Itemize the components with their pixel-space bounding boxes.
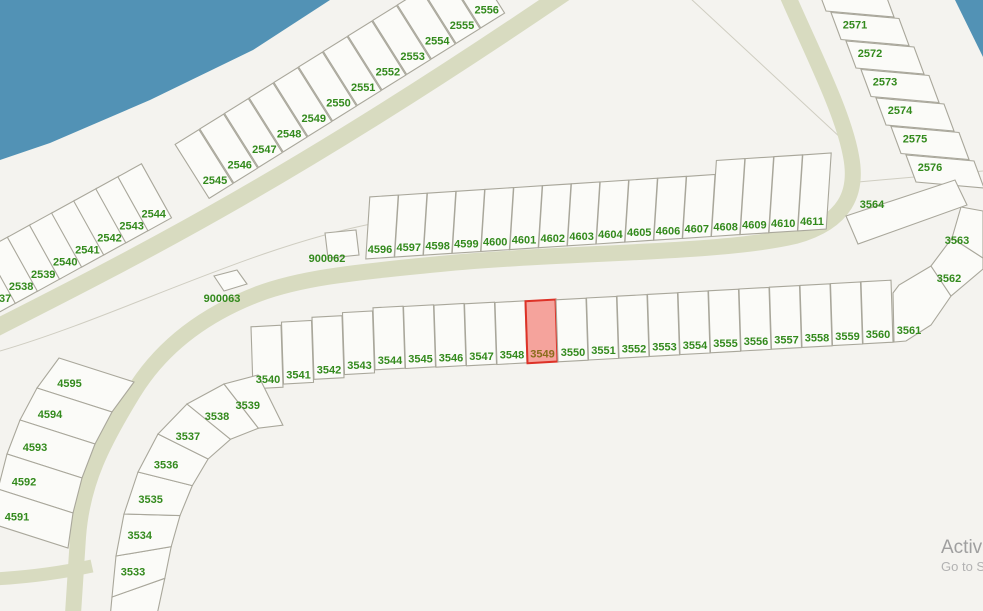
lot-label: 2552 [376, 67, 400, 79]
lot-label: 3556 [744, 336, 768, 348]
lot-label: 4611 [800, 216, 824, 228]
lot-label: 4591 [5, 512, 29, 524]
lot-label: 3553 [652, 342, 676, 354]
selected-parcel-label: 3549 [530, 348, 554, 360]
lot-label: 3544 [378, 355, 403, 367]
lot-label: 3535 [138, 494, 162, 506]
lot-label: 4607 [685, 223, 709, 235]
lot-label: 3543 [347, 360, 371, 372]
lot-label: 4598 [425, 240, 449, 252]
parcel-map[interactable]: 2537253825392540254125422543254425452546… [0, 0, 983, 611]
lot-label: 3555 [713, 338, 737, 350]
lot-label: 4603 [569, 231, 593, 243]
lot-label: 4601 [512, 235, 536, 247]
lot-label: 2573 [873, 77, 897, 89]
lot-label: 3540 [256, 374, 280, 386]
lot-label: 4599 [454, 238, 478, 250]
lot-label: 4606 [656, 225, 680, 237]
lot-label: 2541 [75, 245, 99, 257]
lot-label: 3536 [154, 460, 178, 472]
lot-label: 3534 [128, 530, 153, 542]
lot-label: 4593 [23, 442, 47, 454]
lot-label: 3547 [469, 351, 493, 363]
lot-label: 2537 [0, 293, 11, 305]
lot-label: 2539 [31, 269, 55, 281]
lot-label: 3557 [774, 334, 798, 346]
lot-label: 4608 [713, 222, 737, 234]
lot-label: 4610 [771, 218, 795, 230]
lot-label: 2553 [400, 51, 424, 63]
lot-label: 2548 [277, 129, 301, 141]
lot-label: 2545 [203, 175, 227, 187]
lot-label: 3541 [286, 369, 310, 381]
lot-label: 4597 [397, 242, 421, 254]
lot-label: 2575 [903, 134, 927, 146]
lot-label: 2550 [326, 98, 350, 110]
lot-label: 3538 [205, 411, 229, 423]
lot-label: 3563 [945, 235, 969, 247]
lot-label: 3560 [866, 329, 890, 341]
lot-label: 3548 [500, 350, 524, 362]
lot-label: 3545 [408, 354, 432, 366]
lot-label: 2547 [252, 144, 276, 156]
lot-label: 3562 [937, 273, 961, 285]
lot-label: 4594 [38, 409, 63, 421]
lot-label: 2546 [227, 160, 251, 172]
lot-label: 2555 [450, 20, 474, 32]
lot-label: 4602 [541, 233, 565, 245]
lot-label: 4600 [483, 237, 507, 249]
lot-label: 3552 [622, 343, 646, 355]
lot-label: 2556 [474, 5, 498, 17]
lot-label: 3558 [805, 333, 829, 345]
lot-label: 2554 [425, 36, 450, 48]
lot-label: 3551 [591, 345, 615, 357]
lot-label: 2576 [918, 162, 942, 174]
lot-label: 2571 [843, 20, 867, 32]
lot-label: 2544 [141, 208, 166, 220]
lot-label: 4604 [598, 229, 623, 241]
activation-watermark-subtitle: Go to Settings to activate Windows. [941, 559, 983, 575]
activation-watermark-title: Activate Windows [941, 537, 983, 559]
lot-label: 3539 [236, 400, 260, 412]
lot-label: 4592 [12, 477, 36, 489]
lot-label: 2551 [351, 82, 375, 94]
lot-label: 3559 [835, 331, 859, 343]
lot-label: 3554 [683, 340, 708, 352]
map-viewport[interactable]: 2537253825392540254125422543254425452546… [0, 0, 983, 611]
lot-label: 4605 [627, 227, 651, 239]
lot-label: 3542 [317, 365, 341, 377]
lot-label: 3533 [121, 567, 145, 579]
lot-label: 2540 [53, 257, 77, 269]
lot-label: 2574 [888, 105, 913, 117]
lot-label: 4595 [57, 378, 81, 390]
lot-label: 4609 [742, 220, 766, 232]
activation-watermark: Activate Windows Go to Settings to activ… [941, 537, 983, 575]
lot-label: 2538 [9, 281, 33, 293]
lot-label: 3537 [176, 431, 200, 443]
lot-label: 3546 [439, 352, 463, 364]
lot-label: 3564 [860, 199, 885, 211]
lot-label: 2572 [858, 48, 882, 60]
out-parcel-label: 900063 [204, 293, 241, 305]
lot-label: 2543 [119, 220, 143, 232]
lot-label: 3550 [561, 347, 585, 359]
lot-label: 2549 [302, 113, 326, 125]
lot-label: 2542 [97, 233, 121, 245]
lot-label: 4596 [368, 244, 392, 256]
lot-label: 3561 [897, 325, 921, 337]
out-parcel-label: 900062 [309, 253, 346, 265]
